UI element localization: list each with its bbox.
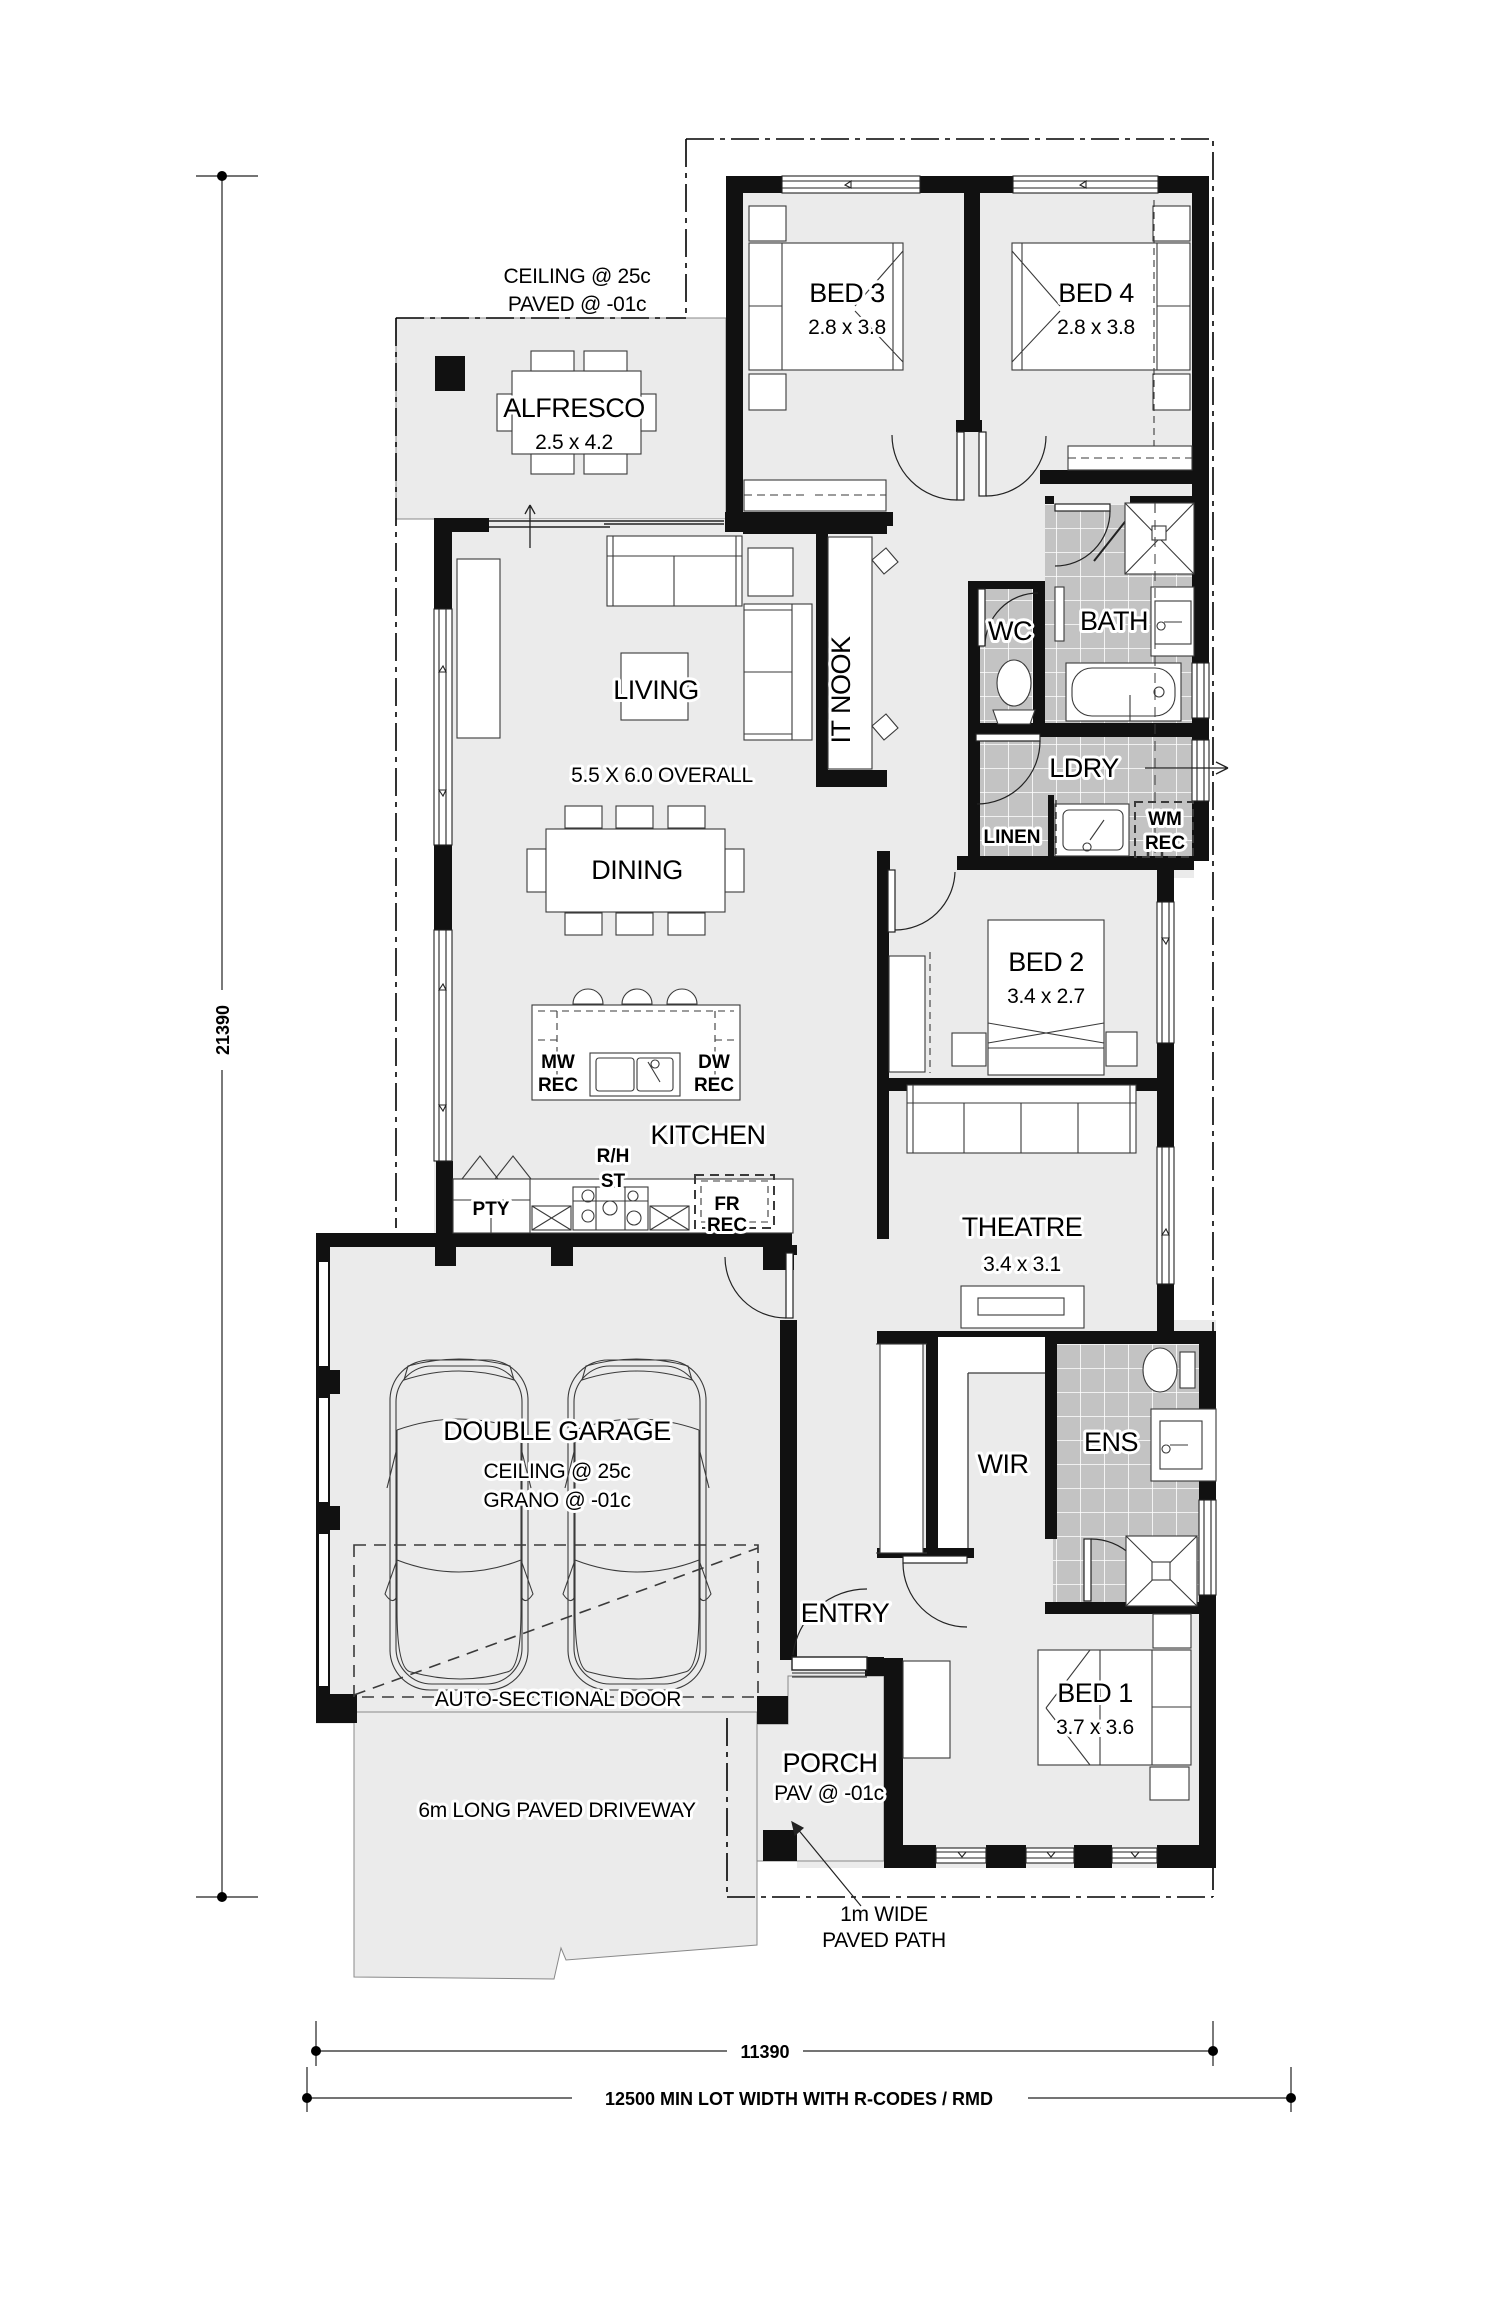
- svg-text:WM: WM: [1148, 809, 1182, 830]
- svg-text:21390: 21390: [213, 1005, 233, 1055]
- svg-text:DOUBLE GARAGE: DOUBLE GARAGE: [443, 1416, 671, 1446]
- svg-text:LIVING: LIVING: [613, 675, 699, 705]
- svg-text:IT NOOK: IT NOOK: [826, 636, 856, 744]
- svg-text:REC: REC: [707, 1215, 747, 1236]
- svg-text:2.5 x 4.2: 2.5 x 4.2: [535, 431, 613, 454]
- svg-text:REC: REC: [1145, 833, 1185, 854]
- svg-text:BED 4: BED 4: [1058, 278, 1134, 308]
- svg-text:BED 3: BED 3: [809, 278, 885, 308]
- svg-text:LDRY: LDRY: [1049, 753, 1119, 783]
- svg-text:PAV @ -01c: PAV @ -01c: [774, 1782, 884, 1805]
- svg-text:REC: REC: [538, 1075, 578, 1096]
- svg-text:REC: REC: [694, 1075, 734, 1096]
- svg-text:ST: ST: [601, 1171, 626, 1192]
- svg-text:PAVED @ -01c: PAVED @ -01c: [508, 293, 646, 316]
- svg-text:BED 1: BED 1: [1057, 1678, 1133, 1708]
- svg-text:BED 2: BED 2: [1008, 947, 1084, 977]
- svg-text:DINING: DINING: [591, 855, 683, 885]
- svg-text:3.4 x 2.7: 3.4 x 2.7: [1007, 985, 1085, 1008]
- svg-text:R/H: R/H: [597, 1146, 630, 1167]
- svg-text:FR: FR: [714, 1194, 740, 1215]
- svg-text:BATH: BATH: [1080, 606, 1148, 636]
- svg-text:AUTO-SECTIONAL DOOR: AUTO-SECTIONAL DOOR: [435, 1688, 681, 1711]
- svg-text:3.7 x 3.6: 3.7 x 3.6: [1056, 1716, 1134, 1739]
- svg-text:CEILING @ 25c: CEILING @ 25c: [504, 265, 651, 288]
- svg-text:ENS: ENS: [1084, 1427, 1138, 1457]
- svg-text:1m WIDE: 1m WIDE: [840, 1903, 928, 1926]
- svg-text:2.8 x 3.8: 2.8 x 3.8: [1057, 316, 1135, 339]
- svg-text:THEATRE: THEATRE: [962, 1212, 1083, 1242]
- svg-text:WIR: WIR: [978, 1449, 1029, 1479]
- svg-text:3.4 x 3.1: 3.4 x 3.1: [983, 1253, 1061, 1276]
- svg-text:ENTRY: ENTRY: [801, 1598, 890, 1628]
- svg-text:WC: WC: [988, 616, 1032, 646]
- svg-text:2.8 x 3.8: 2.8 x 3.8: [808, 316, 886, 339]
- svg-text:KITCHEN: KITCHEN: [650, 1120, 765, 1150]
- svg-text:11390: 11390: [740, 2042, 789, 2062]
- svg-text:PORCH: PORCH: [782, 1748, 877, 1778]
- svg-text:GRANO @ -01c: GRANO @ -01c: [483, 1489, 630, 1512]
- svg-text:PTY: PTY: [473, 1199, 510, 1220]
- svg-text:6m LONG PAVED DRIVEWAY: 6m LONG PAVED DRIVEWAY: [418, 1799, 696, 1822]
- svg-text:DW: DW: [698, 1052, 730, 1073]
- svg-text:5.5 X 6.0 OVERALL: 5.5 X 6.0 OVERALL: [571, 764, 753, 787]
- svg-text:PAVED PATH: PAVED PATH: [822, 1929, 946, 1952]
- svg-text:CEILING @ 25c: CEILING @ 25c: [484, 1460, 631, 1483]
- svg-text:LINEN: LINEN: [984, 827, 1041, 848]
- svg-text:MW: MW: [541, 1052, 575, 1073]
- svg-text:ALFRESCO: ALFRESCO: [503, 393, 645, 423]
- svg-text:12500 MIN LOT WIDTH WITH R-COD: 12500 MIN LOT WIDTH WITH R-CODES / RMD: [605, 2089, 993, 2109]
